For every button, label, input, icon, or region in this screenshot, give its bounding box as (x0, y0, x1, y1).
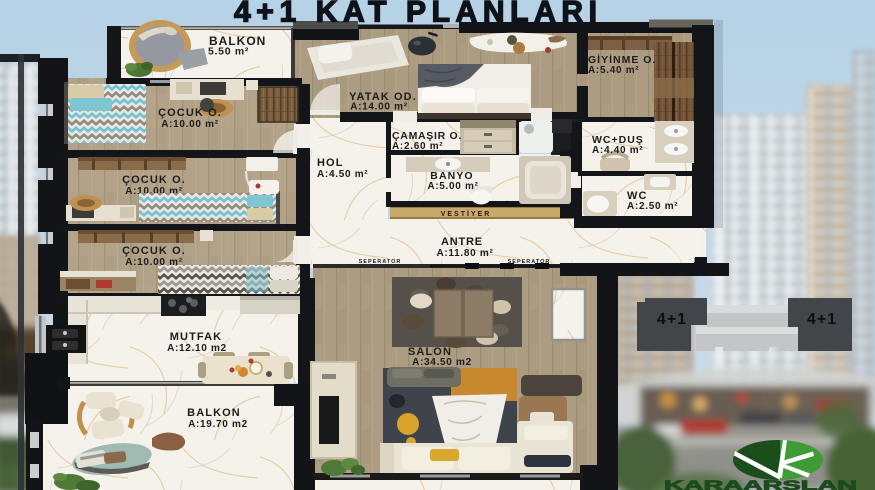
svg-text:5.50 m²: 5.50 m² (208, 46, 249, 58)
svg-text:BALKON: BALKON (187, 407, 241, 419)
svg-text:HOL: HOL (317, 157, 344, 169)
svg-text:A:2.60 m²: A:2.60 m² (392, 141, 443, 152)
svg-text:ÇOCUK O.: ÇOCUK O. (158, 107, 222, 119)
svg-text:A:10.00 m²: A:10.00 m² (161, 119, 219, 130)
svg-text:SEPERATOR: SEPERATOR (508, 259, 551, 265)
svg-text:A:19.70 m2: A:19.70 m2 (188, 419, 248, 430)
svg-text:ANTRE: ANTRE (441, 236, 483, 248)
svg-text:4+1: 4+1 (657, 311, 687, 328)
svg-text:A:4.40 m²: A:4.40 m² (592, 145, 643, 156)
svg-text:A:34.50 m2: A:34.50 m2 (412, 357, 472, 368)
svg-text:A:4.50 m²: A:4.50 m² (317, 169, 368, 180)
svg-text:A:2.50 m²: A:2.50 m² (627, 201, 678, 212)
svg-text:ÇOCUK O.: ÇOCUK O. (122, 174, 186, 186)
svg-text:KARAARSLAN: KARAARSLAN (664, 478, 857, 490)
svg-text:A:11.80 m²: A:11.80 m² (436, 248, 493, 259)
svg-text:4+1: 4+1 (807, 311, 837, 328)
svg-text:VESTİYER: VESTİYER (441, 210, 492, 218)
svg-text:SEPERATOR: SEPERATOR (359, 259, 402, 265)
svg-text:ÇOCUK O.: ÇOCUK O. (122, 245, 186, 257)
svg-text:4+1 KAT PLANLARI: 4+1 KAT PLANLARI (234, 0, 597, 29)
svg-text:A:14.00 m²: A:14.00 m² (350, 102, 408, 113)
svg-text:A:5.00 m²: A:5.00 m² (427, 181, 478, 192)
svg-text:MUTFAK: MUTFAK (170, 331, 222, 343)
svg-text:A:5.40 m²: A:5.40 m² (588, 65, 639, 76)
